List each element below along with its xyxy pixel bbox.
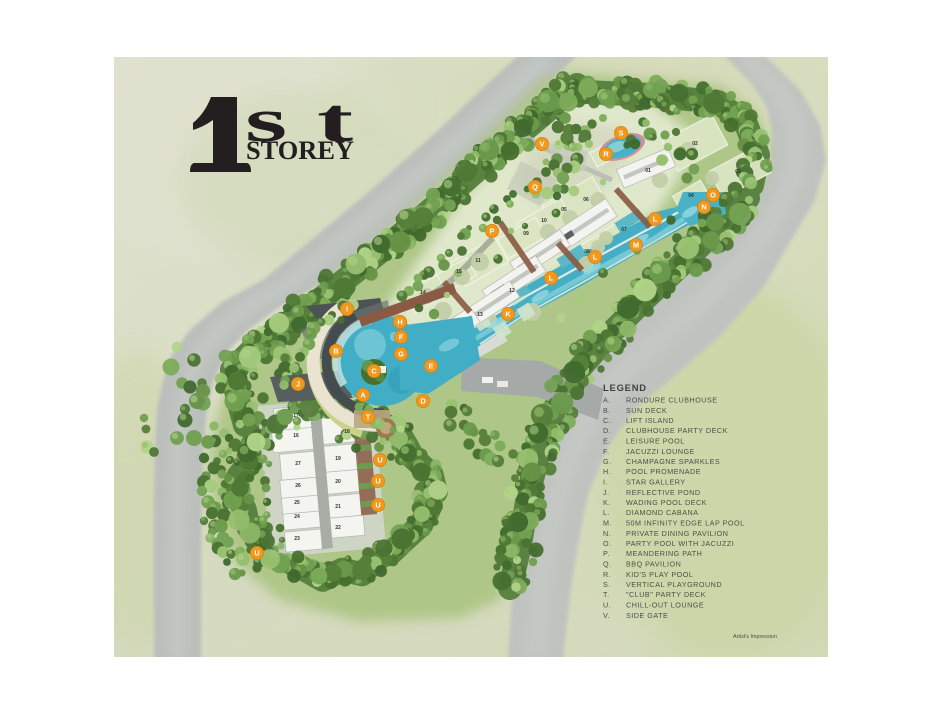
svg-text:U: U [375,501,380,510]
svg-text:R: R [603,150,609,159]
svg-text:REFLECTIVE POND: REFLECTIVE POND [626,488,701,497]
svg-text:H.: H. [603,467,611,476]
svg-text:KID'S PLAY POOL: KID'S PLAY POOL [626,570,693,579]
svg-text:K.: K. [603,498,611,507]
svg-text:POOL PROMENADE: POOL PROMENADE [626,467,701,476]
svg-text:06: 06 [583,197,589,203]
svg-text:BBQ PAVILION: BBQ PAVILION [626,560,681,569]
svg-text:19: 19 [335,456,341,462]
svg-text:Q: Q [532,183,538,192]
svg-text:18: 18 [344,429,350,435]
svg-text:G.: G. [603,457,612,466]
svg-text:10: 10 [541,218,547,224]
svg-text:11: 11 [475,258,481,264]
svg-text:U: U [377,456,382,465]
svg-text:F: F [399,333,404,342]
svg-text:B.: B. [603,406,611,415]
svg-text:S.: S. [603,580,611,589]
svg-text:05: 05 [561,207,567,213]
svg-text:T.: T. [603,590,610,599]
svg-text:RONDURE CLUBHOUSE: RONDURE CLUBHOUSE [626,396,718,405]
svg-text:LEGEND: LEGEND [603,382,647,393]
svg-text:V.: V. [603,611,610,620]
svg-text:L.: L. [603,508,610,517]
svg-text:Q.: Q. [603,560,612,569]
svg-text:D.: D. [603,426,611,435]
svg-text:STAR GALLERY: STAR GALLERY [626,478,686,487]
svg-text:01: 01 [645,168,651,174]
svg-text:S: S [619,129,624,138]
svg-text:LEISURE POOL: LEISURE POOL [626,437,685,446]
svg-text:LIFT ISLAND: LIFT ISLAND [626,416,674,425]
svg-text:14: 14 [420,290,426,296]
svg-text:24: 24 [294,514,300,520]
svg-text:15: 15 [456,269,462,275]
svg-text:CHILL-OUT LOUNGE: CHILL-OUT LOUNGE [626,601,704,610]
svg-text:P: P [490,227,495,236]
svg-text:MEANDERING PATH: MEANDERING PATH [626,549,702,558]
svg-text:JACUZZI LOUNGE: JACUZZI LOUNGE [626,447,695,456]
svg-text:27: 27 [295,461,301,467]
svg-text:02: 02 [692,141,698,147]
svg-text:50M INFINITY EDGE LAP POOL: 50M INFINITY EDGE LAP POOL [626,519,745,528]
svg-text:M: M [633,241,639,250]
svg-text:N.: N. [603,529,611,538]
svg-text:SIDE GATE: SIDE GATE [626,611,668,620]
svg-text:G: G [398,350,404,359]
svg-text:L: L [653,215,658,224]
svg-text:C: C [371,367,377,376]
svg-text:PARTY POOL WITH JACUZZI: PARTY POOL WITH JACUZZI [626,539,734,548]
svg-text:M.: M. [603,519,612,528]
svg-text:D: D [420,397,426,406]
svg-text:04: 04 [688,193,694,199]
svg-text:L: L [549,274,554,283]
svg-text:03: 03 [735,169,741,175]
svg-text:T: T [366,413,371,422]
svg-text:PRIVATE DINING PAVILION: PRIVATE DINING PAVILION [626,529,728,538]
svg-text:B: B [333,347,338,356]
svg-text:E.: E. [603,437,611,446]
svg-text:K: K [505,310,511,319]
svg-text:J.: J. [603,488,610,497]
svg-text:22: 22 [335,525,341,531]
svg-text:17: 17 [293,413,299,419]
svg-text:E: E [429,362,434,371]
svg-text:O: O [710,191,716,200]
svg-text:07: 07 [621,227,627,233]
svg-text:26: 26 [295,483,301,489]
svg-text:F.: F. [603,447,610,456]
svg-text:C.: C. [603,416,611,425]
svg-text:U: U [375,477,380,486]
svg-text:N: N [701,203,706,212]
svg-text:13: 13 [477,312,483,318]
svg-text:"CLUB" PARTY DECK: "CLUB" PARTY DECK [626,590,706,599]
svg-text:12: 12 [509,288,515,294]
svg-text:J: J [296,380,300,389]
svg-text:CHAMPAGNE SPARKLES: CHAMPAGNE SPARKLES [626,457,720,466]
svg-text:Artist's Impression: Artist's Impression [733,634,777,640]
svg-text:U: U [254,549,259,558]
svg-text:O.: O. [603,539,612,548]
svg-text:P.: P. [603,549,610,558]
svg-text:A: A [360,391,366,400]
svg-text:09: 09 [523,231,529,237]
svg-text:I: I [346,305,348,314]
svg-text:STOREY: STOREY [246,135,354,165]
svg-text:08: 08 [584,249,590,255]
svg-text:VERTICAL PLAYGROUND: VERTICAL PLAYGROUND [626,580,722,589]
svg-text:V: V [540,140,545,149]
svg-text:SUN DECK: SUN DECK [626,406,667,415]
svg-text:I.: I. [603,478,608,487]
svg-text:A.: A. [603,396,611,405]
svg-text:16: 16 [293,433,299,439]
svg-text:L: L [593,253,598,262]
svg-text:21: 21 [335,504,341,510]
svg-text:WADING POOL DECK: WADING POOL DECK [626,498,707,507]
svg-text:DIAMOND CABANA: DIAMOND CABANA [626,508,699,517]
svg-text:23: 23 [294,536,300,542]
svg-text:U.: U. [603,601,611,610]
svg-text:25: 25 [294,500,300,506]
svg-text:R.: R. [603,570,611,579]
svg-text:H: H [397,318,402,327]
svg-text:CLUBHOUSE PARTY DECK: CLUBHOUSE PARTY DECK [626,426,728,435]
svg-text:20: 20 [335,479,341,485]
